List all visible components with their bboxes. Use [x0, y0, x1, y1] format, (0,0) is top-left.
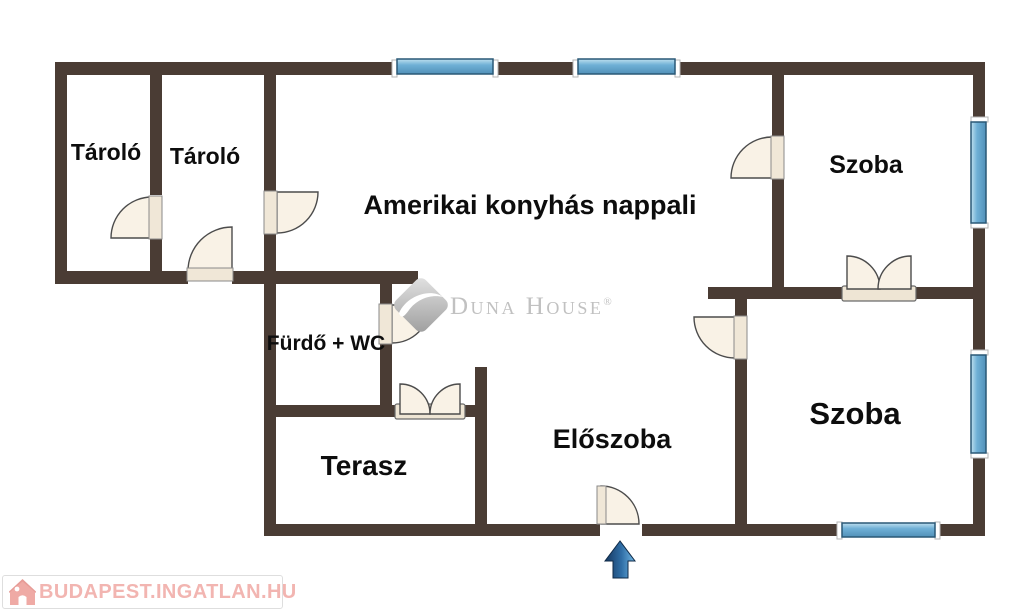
room-label-nappali: Amerikai konyhás nappali: [363, 190, 696, 220]
entrance-arrow-icon: [605, 541, 635, 578]
door-szoba-bottom: [694, 316, 747, 359]
room-label-tarolo-2: Tároló: [170, 143, 240, 169]
door-entrance: [597, 486, 639, 524]
window-bottom: [837, 522, 940, 539]
room-label-szoba-bottom: Szoba: [809, 396, 901, 431]
portal-logo: BUDAPEST.INGATLAN.HU: [2, 575, 283, 609]
window-right-top: [971, 117, 988, 228]
house-icon: [9, 578, 36, 606]
room-label-terasz: Terasz: [321, 450, 408, 481]
window-right-bottom: [971, 350, 988, 458]
door-tarolo-2: [187, 227, 233, 281]
door-tarolo-1: [111, 196, 162, 239]
french-door-szoba: [842, 256, 916, 301]
dunahouse-brand-text: Duna House®: [450, 293, 614, 320]
floor-plan-image: Tároló Tároló Amerikai konyhás nappali S…: [0, 0, 1024, 614]
door-nappali: [264, 191, 318, 234]
french-door-terasz: [395, 384, 465, 419]
window-top-1: [392, 59, 498, 77]
room-label-furdo-wc: Fürdő + WC: [267, 332, 385, 355]
dunahouse-watermark: Duna House®: [391, 275, 614, 334]
door-szoba-top: [731, 136, 784, 179]
room-label-szoba-top: Szoba: [829, 151, 904, 179]
floor-plan-svg: Tároló Tároló Amerikai konyhás nappali S…: [0, 0, 1024, 614]
room-label-tarolo-1: Tároló: [71, 139, 141, 165]
portal-logo-text: BUDAPEST.INGATLAN.HU: [39, 581, 297, 604]
room-label-eloszoba: Előszoba: [553, 424, 673, 454]
window-top-2: [573, 59, 680, 77]
